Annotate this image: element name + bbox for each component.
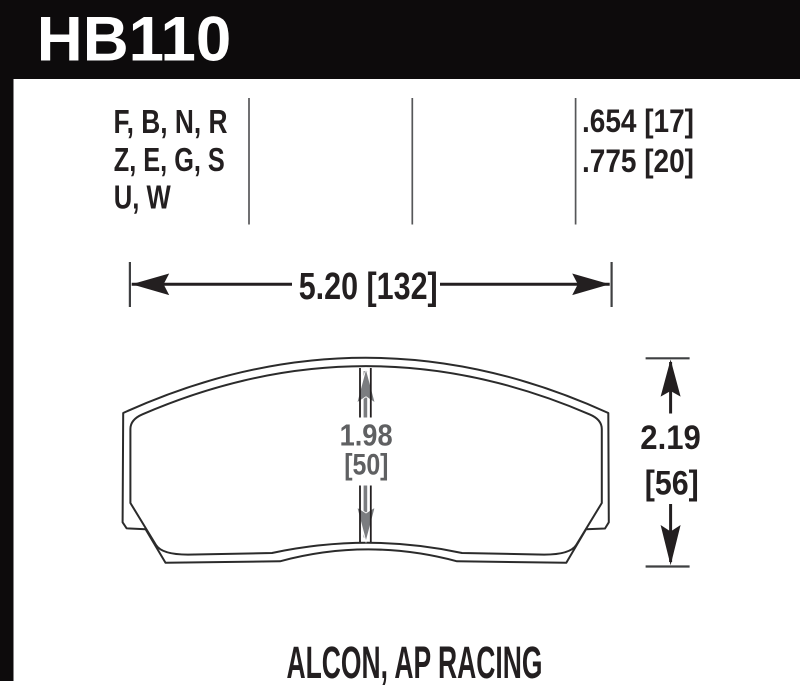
svg-text:F, B, N, R: F, B, N, R [114, 104, 228, 141]
svg-text:Z, E, G, S: Z, E, G, S [114, 142, 225, 179]
svg-text:[50]: [50] [344, 449, 388, 482]
svg-text:ALCON, AP RACING: ALCON, AP RACING [287, 637, 543, 688]
svg-text:5.20 [132]: 5.20 [132] [299, 266, 438, 308]
svg-text:U, W: U, W [114, 180, 171, 217]
svg-text:1.98: 1.98 [340, 419, 393, 452]
svg-text:HB110: HB110 [37, 5, 231, 75]
svg-text:.775 [20]: .775 [20] [582, 142, 694, 179]
svg-text:[56]: [56] [645, 465, 699, 503]
svg-text:2.19: 2.19 [640, 419, 701, 457]
svg-text:.654 [17]: .654 [17] [582, 102, 694, 139]
